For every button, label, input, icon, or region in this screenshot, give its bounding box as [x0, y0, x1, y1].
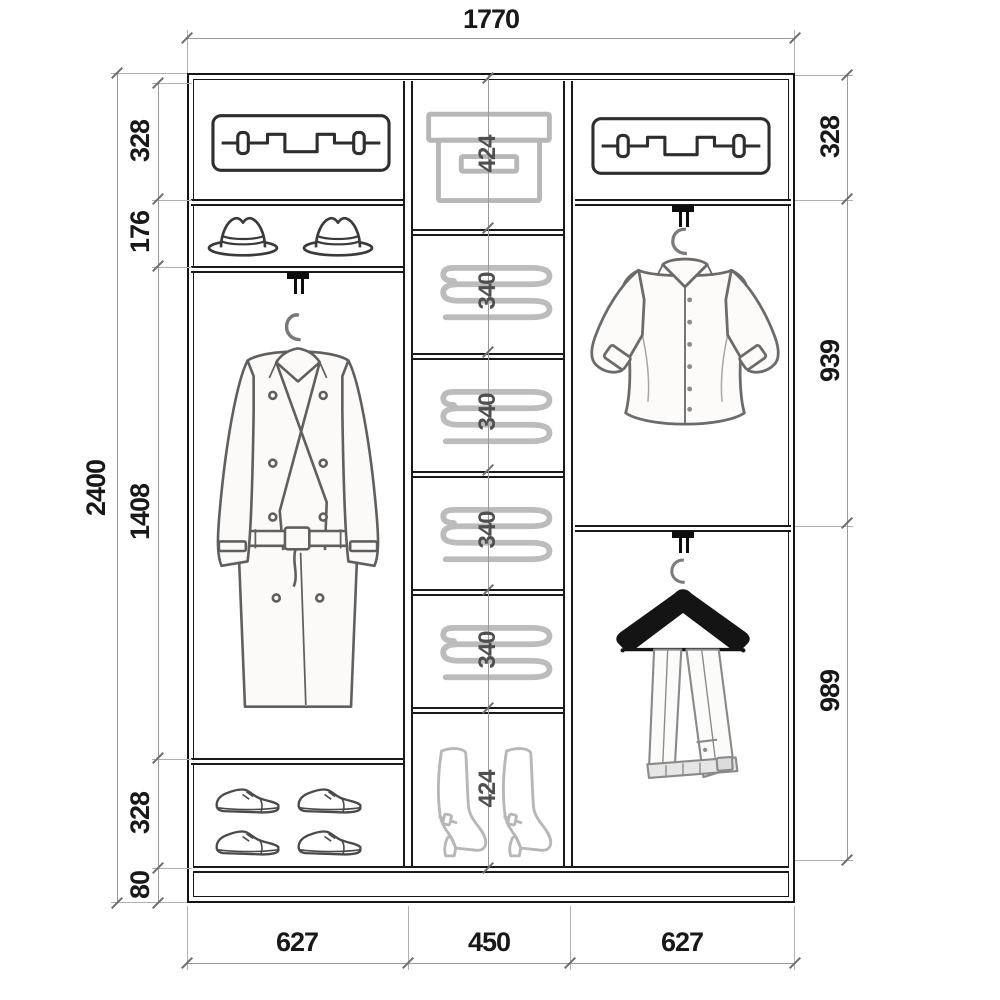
dimension-line-top: [187, 38, 795, 39]
dim-left-section-3: 1408: [125, 452, 155, 572]
shoe-icon: [294, 823, 367, 858]
suitcase-icon: [585, 115, 777, 177]
wardrobe-dimension-diagram: 1770 2400 328 176 1408 328 80 328 939 98…: [0, 0, 1000, 1000]
dim-right-section-3: 989: [815, 631, 845, 751]
hanging-rod-stem: [686, 538, 689, 553]
shoe-icon: [212, 781, 285, 816]
dim-right-section-2: 939: [815, 301, 845, 421]
cabinet-floor: [193, 866, 789, 873]
dim-center-section-4: 340: [473, 475, 503, 585]
partition-wall-left: [403, 81, 413, 866]
trousers-on-hanger-icon: [598, 552, 768, 810]
dimension-line-bottom: [187, 963, 795, 964]
hanging-rod-bracket: [672, 531, 694, 538]
hanging-rod-stem: [679, 538, 682, 553]
hanging-rod-bracket: [672, 205, 694, 212]
shelf: [191, 199, 403, 206]
coat-on-hanger-icon: [198, 276, 398, 746]
dim-center-section-6: 424: [473, 734, 503, 844]
dim-right-section-1: 328: [815, 77, 845, 197]
shelf: [191, 758, 403, 765]
dim-center-section-5: 340: [473, 595, 503, 705]
shoe-icon: [294, 781, 367, 816]
shirt-on-hanger-icon: [583, 215, 787, 445]
extension-line: [111, 73, 187, 74]
hat-icon: [203, 208, 283, 260]
dim-center-section-3: 340: [473, 357, 503, 467]
hat-icon: [298, 208, 378, 260]
dimension-line-left-inner: [158, 83, 159, 903]
shoe-icon: [212, 823, 285, 858]
dim-total-width: 1770: [441, 4, 541, 34]
dim-center-section-1: 424: [473, 99, 503, 209]
dim-bottom-center-width: 450: [439, 927, 539, 957]
dim-left-section-2: 176: [125, 172, 155, 292]
suitcase-icon: [205, 112, 397, 174]
dimension-line-right: [847, 75, 848, 860]
dim-center-section-2: 340: [473, 236, 503, 346]
partition-wall-right: [563, 81, 573, 866]
dim-bottom-right-width: 627: [632, 927, 732, 957]
dim-total-height: 2400: [81, 428, 111, 548]
boot-icon: [496, 744, 554, 858]
dim-left-section-5: 80: [125, 825, 155, 945]
dim-bottom-left-width: 627: [247, 927, 347, 957]
dimension-line-left-outer: [117, 73, 118, 903]
